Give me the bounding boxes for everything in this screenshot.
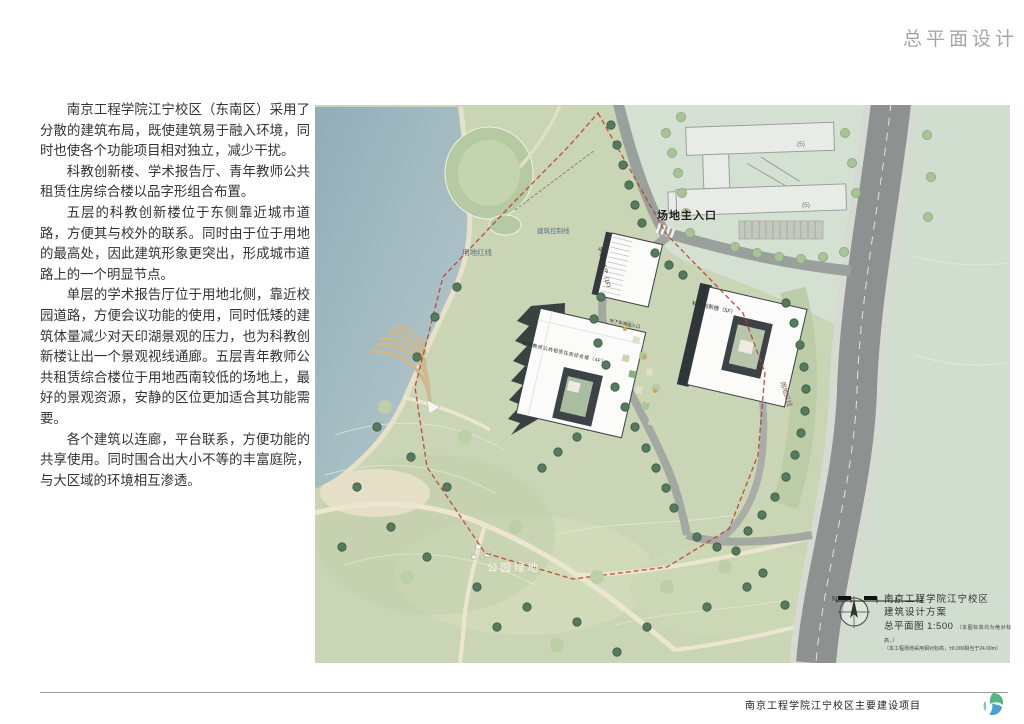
site-plan: P 场地主入口 用地红线 用地红线 建筑控制线 公园绿地 学术报告厅（1F） 科… [315,105,1010,663]
description-paragraph: 南京工程学院江宁校区（东南区）采用了分散的建筑布局，既使建筑易于融入环境，同时也… [40,100,310,162]
label-existing-floors: (5) [802,202,810,209]
label-main-entrance: 场地主入口 [657,207,717,223]
page-title: 总平面设计 [903,24,1018,51]
description-paragraph: 五层的科教创新楼位于东侧靠近城市道路，方便其与校外的联系。同时由于位于用地的最高… [40,203,310,285]
title-block-scheme: 建筑设计方案 [884,607,1016,620]
site-plan-rendering: P [315,105,1010,663]
footer-project-name: 南京工程学院江宁校区主要建设项目 [745,697,921,712]
title-block-datum: （本工程场地采用相对标高，±0.000相当于24.00m） [884,646,1016,654]
label-site-redline: 用地红线 [462,247,492,258]
description-paragraph: 科教创新楼、学术报告厅、青年教师公共租赁住房综合楼以品字形组合布置。 [40,162,310,203]
label-control-line: 建筑控制线 [537,225,570,235]
footer-rule [40,692,1008,693]
design-description: 南京工程学院江宁校区（东南区）采用了分散的建筑布局，既使建筑易于融入环境，同时也… [40,100,310,491]
description-paragraph: 各个建筑以连廊，平台联系，方便功能的共享使用。同时围合出大小不等的丰富庭院，与大… [40,430,310,492]
scale-bar [836,594,928,603]
footer-logo-icon [980,691,1006,717]
drawing-title-block: N 南京工程学院江宁校区 建筑设计方案 总平面图 1:500 （本图标高均为绝对… [836,594,1016,658]
label-park-green: 公园绿地 [487,560,541,575]
title-block-drawing: 总平面图 1:500 （本图标高均为绝对标高。） [884,620,1016,647]
description-paragraph: 单层的学术报告厅位于用地北侧，靠近校园道路，方便会议功能的使用，同时低矮的建筑体… [40,285,310,429]
label-existing-floors: (5) [797,141,805,148]
